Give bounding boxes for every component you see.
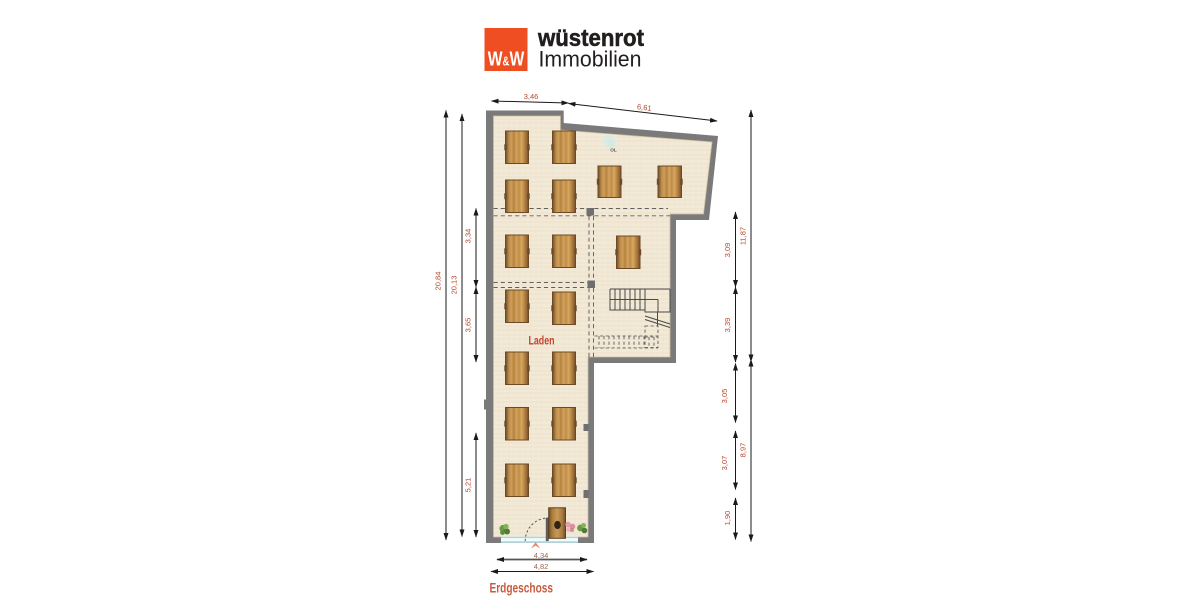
svg-text:3,46: 3,46 [524, 92, 539, 101]
svg-text:20,13: 20,13 [450, 276, 459, 295]
svg-text:Immobilien: Immobilien [539, 47, 642, 72]
svg-text:3,39: 3,39 [723, 318, 732, 333]
svg-text:5,21: 5,21 [464, 478, 473, 493]
svg-text:11,87: 11,87 [739, 227, 748, 245]
svg-text:3,07: 3,07 [720, 456, 729, 471]
svg-text:Erdgeschoss: Erdgeschoss [490, 581, 554, 596]
svg-text:OL: OL [610, 148, 617, 153]
svg-text:4,34: 4,34 [534, 551, 549, 560]
svg-text:3,09: 3,09 [723, 243, 732, 258]
svg-text:Laden: Laden [529, 336, 555, 348]
svg-text:1,90: 1,90 [723, 511, 732, 526]
svg-text:3,65: 3,65 [464, 318, 473, 333]
svg-text:6,61: 6,61 [637, 102, 653, 113]
svg-text:20,84: 20,84 [434, 272, 443, 291]
svg-text:3,34: 3,34 [464, 229, 473, 244]
svg-text:4,82: 4,82 [534, 562, 549, 571]
svg-text:8,97: 8,97 [739, 443, 748, 458]
svg-text:3,05: 3,05 [720, 389, 729, 404]
